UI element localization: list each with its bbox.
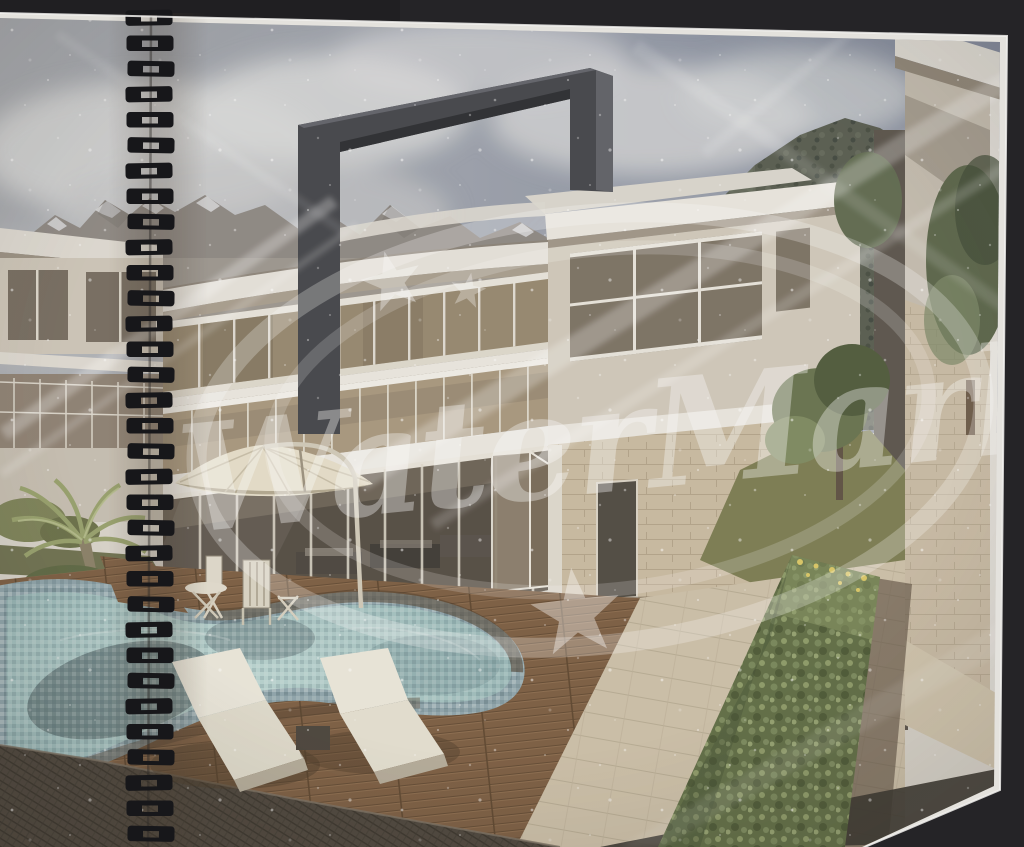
photographed-booklet-page: WaterMark	[0, 0, 1024, 847]
